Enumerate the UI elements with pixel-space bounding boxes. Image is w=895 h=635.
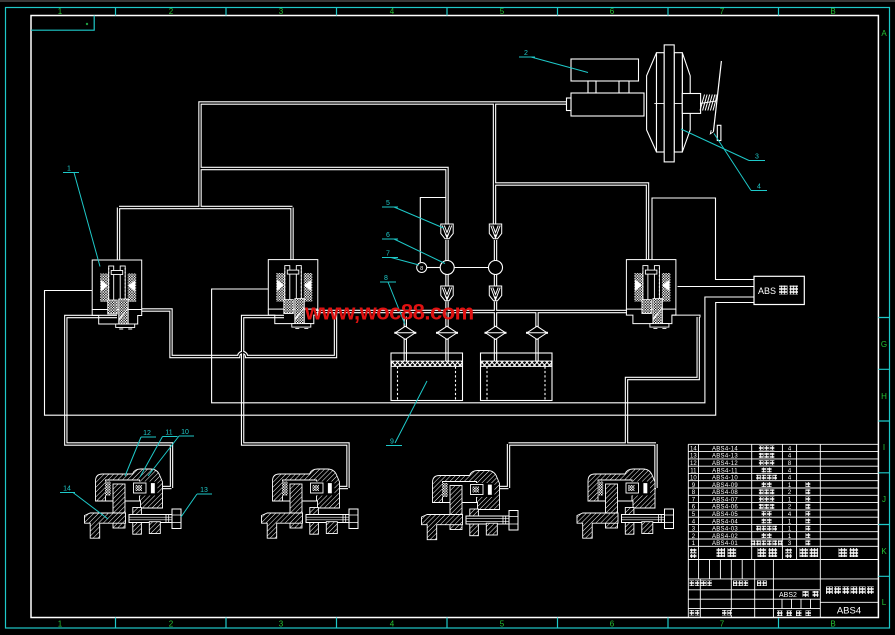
svg-text:L: L bbox=[882, 598, 887, 607]
svg-text:8: 8 bbox=[384, 275, 388, 282]
svg-text:11: 11 bbox=[165, 430, 172, 437]
svg-text:4: 4 bbox=[757, 184, 761, 191]
svg-text:6: 6 bbox=[386, 232, 390, 239]
svg-text:6: 6 bbox=[610, 7, 615, 16]
svg-text:www,woc88.com: www,woc88.com bbox=[304, 300, 474, 325]
svg-text:9: 9 bbox=[390, 439, 394, 446]
svg-text:ABS4-11: ABS4-11 bbox=[712, 468, 738, 474]
svg-text:3: 3 bbox=[279, 7, 284, 16]
svg-text:10: 10 bbox=[181, 429, 189, 436]
svg-text:8: 8 bbox=[420, 266, 423, 272]
svg-text:1: 1 bbox=[67, 166, 71, 173]
svg-text:ABS4-03: ABS4-03 bbox=[712, 527, 738, 533]
svg-text:ABS4-09: ABS4-09 bbox=[712, 483, 738, 489]
svg-text:I: I bbox=[883, 443, 885, 452]
svg-text:ABS4-10: ABS4-10 bbox=[712, 476, 738, 482]
svg-text:2: 2 bbox=[169, 620, 174, 629]
svg-text:5: 5 bbox=[386, 200, 390, 207]
svg-text:3: 3 bbox=[755, 154, 759, 161]
svg-text:B: B bbox=[830, 7, 835, 16]
svg-text:2: 2 bbox=[169, 7, 174, 16]
svg-text:H: H bbox=[881, 392, 887, 401]
svg-text:7: 7 bbox=[386, 251, 390, 258]
svg-text:A: A bbox=[881, 29, 887, 38]
svg-text:ABS: ABS bbox=[758, 286, 776, 296]
svg-text:B: B bbox=[830, 620, 835, 629]
svg-text:2: 2 bbox=[524, 50, 528, 57]
svg-text:5: 5 bbox=[500, 7, 505, 16]
svg-text:G: G bbox=[881, 340, 887, 349]
svg-text:14: 14 bbox=[63, 486, 71, 493]
svg-text:11: 11 bbox=[690, 468, 697, 474]
svg-text:12: 12 bbox=[690, 461, 697, 467]
svg-text:10: 10 bbox=[690, 476, 697, 482]
svg-text:ABS4-13: ABS4-13 bbox=[712, 454, 738, 460]
svg-text:J: J bbox=[882, 495, 886, 504]
svg-text:ABS4-05: ABS4-05 bbox=[712, 512, 738, 518]
svg-text:1: 1 bbox=[58, 620, 63, 629]
svg-text:ABS4-14: ABS4-14 bbox=[712, 446, 738, 452]
svg-text:ABS4-08: ABS4-08 bbox=[712, 490, 738, 496]
svg-text:13: 13 bbox=[690, 454, 697, 460]
svg-text:ABS4: ABS4 bbox=[837, 606, 861, 617]
svg-text:12: 12 bbox=[143, 430, 151, 437]
svg-text:ABS4-04: ABS4-04 bbox=[712, 519, 738, 525]
svg-text:7: 7 bbox=[720, 7, 725, 16]
svg-text:1: 1 bbox=[58, 7, 63, 16]
svg-text:4: 4 bbox=[390, 7, 395, 16]
svg-text:ABS2: ABS2 bbox=[779, 592, 797, 599]
svg-text:ABS4-06: ABS4-06 bbox=[712, 505, 738, 511]
svg-text:13: 13 bbox=[200, 487, 208, 494]
svg-text:7: 7 bbox=[720, 620, 725, 629]
svg-text:4: 4 bbox=[390, 620, 395, 629]
svg-text:ABS4-02: ABS4-02 bbox=[712, 534, 738, 540]
svg-text:K: K bbox=[881, 547, 887, 556]
svg-text:ABS4-12: ABS4-12 bbox=[712, 461, 738, 467]
svg-text:5: 5 bbox=[500, 620, 505, 629]
svg-text:3: 3 bbox=[279, 620, 284, 629]
svg-text:14: 14 bbox=[690, 446, 697, 452]
svg-text:6: 6 bbox=[610, 620, 615, 629]
svg-text:ABS4-07: ABS4-07 bbox=[712, 497, 738, 503]
svg-text:ABS4-01: ABS4-01 bbox=[712, 541, 738, 547]
